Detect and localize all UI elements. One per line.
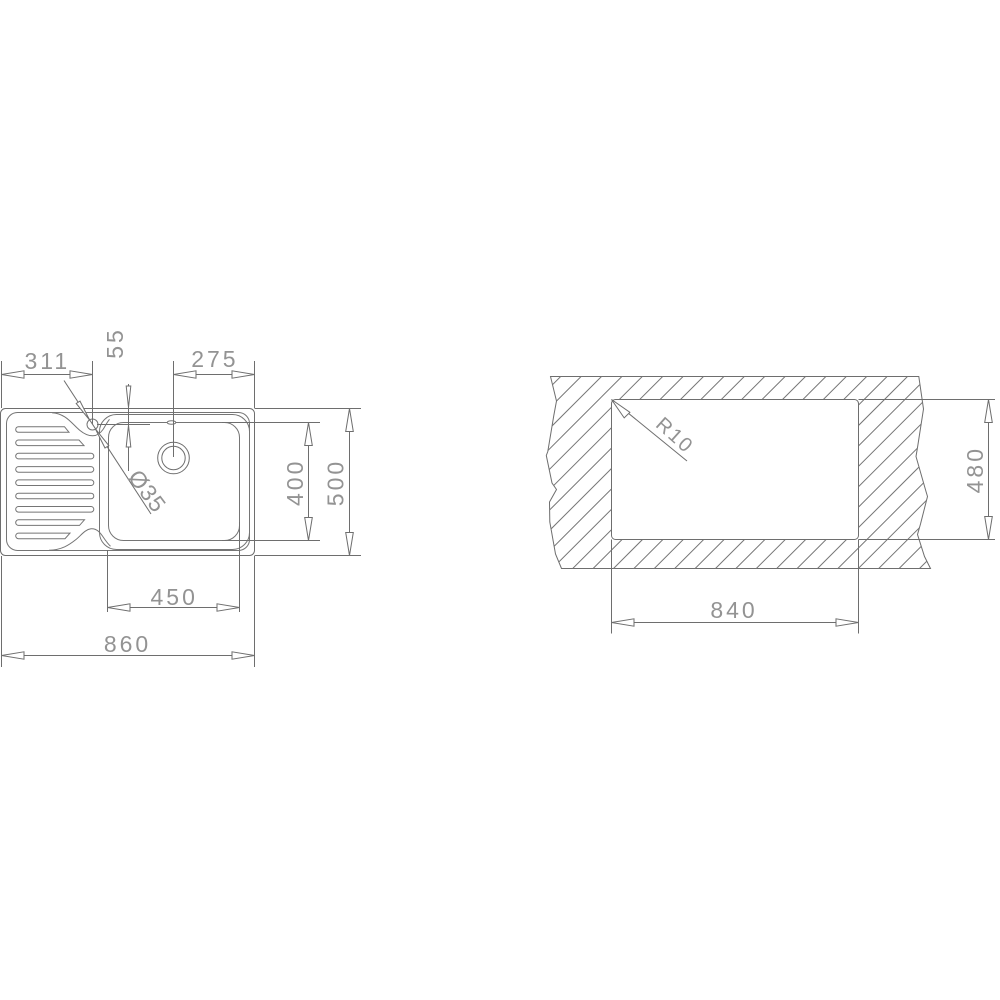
svg-text:450: 450: [151, 584, 198, 610]
svg-text:500: 500: [323, 459, 349, 506]
svg-text:55: 55: [102, 327, 128, 359]
svg-text:400: 400: [282, 459, 308, 506]
svg-text:860: 860: [104, 631, 151, 657]
svg-text:480: 480: [962, 446, 988, 493]
svg-text:840: 840: [710, 597, 757, 623]
svg-text:311: 311: [24, 348, 70, 374]
svg-text:275: 275: [191, 346, 238, 372]
